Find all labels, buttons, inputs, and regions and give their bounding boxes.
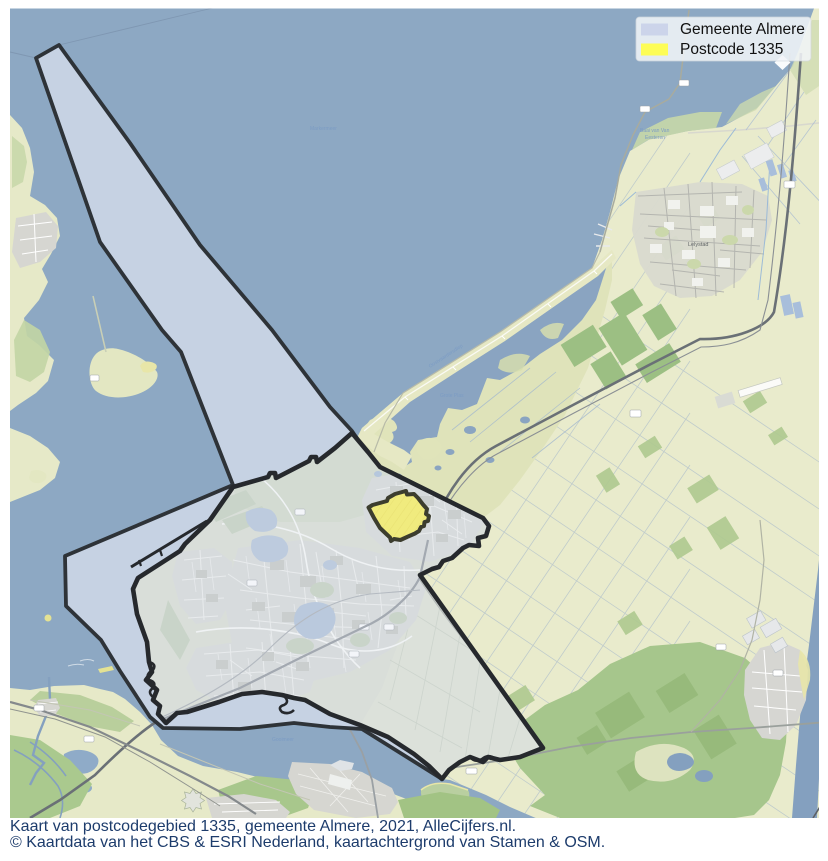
svg-text:Markermeer: Markermeer — [310, 126, 337, 132]
svg-text:Postcode 1335: Postcode 1335 — [680, 41, 783, 58]
svg-text:Baai van Van: Baai van Van — [640, 128, 670, 134]
svg-text:Gemeente Almere: Gemeente Almere — [680, 21, 805, 38]
svg-text:Eesteren: Eesteren — [645, 135, 665, 141]
svg-text:Lelystad: Lelystad — [688, 242, 709, 248]
svg-text:Gooimeer: Gooimeer — [272, 737, 294, 743]
svg-text:Grote Plas: Grote Plas — [440, 393, 464, 399]
